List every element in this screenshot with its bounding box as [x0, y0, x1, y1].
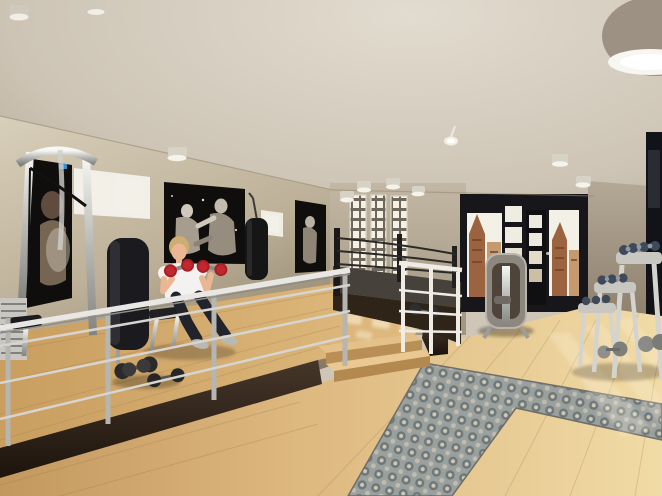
city-view-window-right: [549, 210, 579, 296]
downlight: [340, 191, 354, 203]
downlight: [412, 186, 426, 196]
downlight: [357, 181, 371, 193]
downlight: [552, 154, 568, 167]
poster-boxer-right: [295, 200, 326, 273]
face: [172, 244, 187, 261]
downlight: [10, 5, 30, 21]
gym-render-image: [0, 0, 662, 496]
upright-pad-machine: [107, 238, 149, 364]
downlight: [386, 178, 400, 190]
right-edge-window-hint: [648, 150, 660, 208]
downlight: [88, 1, 106, 15]
downlight: [576, 176, 592, 188]
downlight: [168, 147, 188, 161]
